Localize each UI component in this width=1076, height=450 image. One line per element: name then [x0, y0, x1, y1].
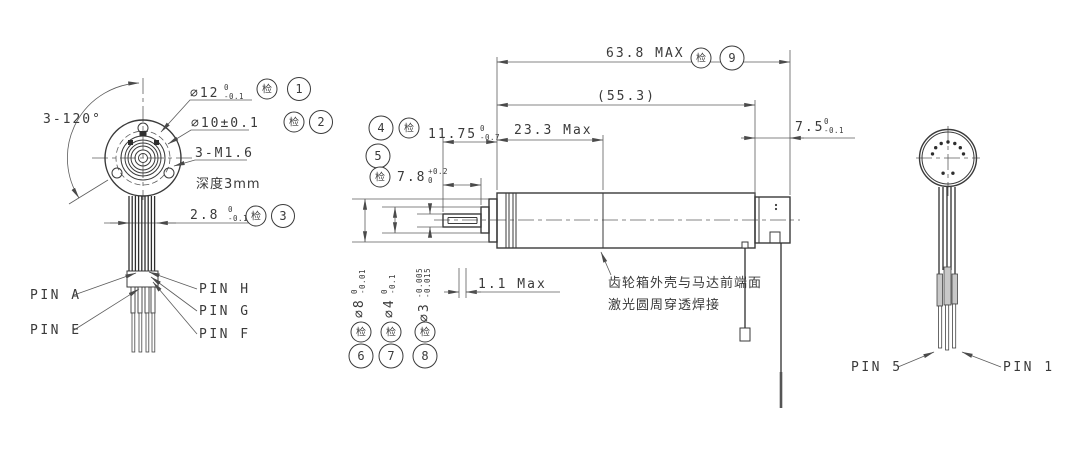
angle-label: 3-120°	[43, 112, 102, 127]
pin-f-label: PIN F	[199, 327, 251, 342]
motor-body	[497, 193, 755, 248]
ref-length-value: (55.3)	[597, 89, 656, 104]
balloon-5-label: 5	[374, 149, 381, 163]
dia4-tol-lower: -0.1	[388, 274, 397, 294]
balloon-1-label: 1	[295, 82, 302, 96]
tail-length-value: 7.5	[795, 120, 824, 135]
dia12-value: ∅12	[190, 86, 219, 101]
dia4-value: ∅4	[382, 298, 397, 318]
weld-note-line2: 激光圆周穿透焊接	[608, 297, 720, 313]
pin-f-leader	[153, 282, 197, 334]
balloon-8-label: 8	[421, 349, 428, 363]
shaft-length-value: 11.75	[428, 127, 477, 142]
pin-g-leader	[151, 277, 197, 311]
end-cap-notch	[770, 232, 780, 243]
balloon-3-label: 3	[279, 209, 286, 223]
pin-a-label: PIN A	[30, 288, 82, 303]
dia12-tol-lower: -0.1	[224, 92, 244, 101]
balloon-2-label: 2	[317, 115, 324, 129]
dia8-dim-text: ∅8 0 -0.01	[350, 269, 367, 318]
total-length-value: 63.8 MAX	[606, 46, 685, 61]
pin-e-label: PIN E	[30, 323, 82, 338]
balloon-4-label: 4	[377, 121, 384, 135]
flat-length-tol-lower: 0	[428, 176, 433, 185]
front-wire-bundle	[127, 196, 158, 352]
balloon-7-label: 7	[387, 349, 394, 363]
balloon-6-label: 6	[357, 349, 364, 363]
inspection-stamp-3-label: 检	[251, 210, 261, 223]
motor-drawing-canvas: 3-120° ∅12 0 -0.1 ∅10±0.1 3-M1.6 深度3mm 2…	[0, 0, 1076, 450]
shaft-length-tol-upper: 0	[480, 124, 485, 133]
inspection-stamp-9-label: 检	[696, 52, 706, 65]
bundle-width-value: 2.8	[190, 208, 219, 223]
gearbox-length-value: 23.3 Max	[514, 123, 593, 138]
dia3-dim-text: ∅3 -0.005 -0.015	[415, 268, 432, 322]
dia4-dim-text: ∅4 0 -0.1	[380, 274, 397, 318]
dia10-leader	[168, 130, 249, 144]
dia12-tol-upper: 0	[224, 83, 229, 92]
pin1-leader	[962, 352, 1001, 367]
inspection-stamp-8-label: 检	[420, 326, 430, 339]
pin1-label: PIN 1	[1003, 360, 1055, 375]
bundle-width-tol-upper: 0	[228, 205, 233, 214]
inspection-stamp-2-label: 检	[289, 116, 299, 129]
flat-length-value: 7.8	[397, 170, 426, 185]
pin-h-label: PIN H	[199, 282, 251, 297]
depth-label: 深度3mm	[196, 176, 261, 192]
output-shaft	[443, 214, 481, 227]
weld-note-leader	[601, 252, 611, 275]
side-view: 63.8 MAX 检 9 (55.3) 23.3 Max 4 检 11.75 0…	[349, 46, 855, 408]
inspection-stamp-7-label: 检	[386, 326, 396, 339]
dia3-tol-lower: -0.015	[423, 268, 432, 298]
tail-length-tol-upper: 0	[824, 117, 829, 126]
inspection-stamp-6-label: 检	[356, 326, 366, 339]
bundle-width-tol-lower: -0.1	[228, 214, 248, 223]
pin-g-label: PIN G	[199, 304, 251, 319]
weld-note-line1: 齿轮箱外壳与马达前端面	[608, 275, 762, 291]
mount-hole-right	[164, 168, 174, 178]
tail-length-tol-lower: -0.1	[824, 126, 844, 135]
shaft-length-tol-lower: -0.7	[480, 133, 500, 142]
engineering-drawing-page: 3-120° ∅12 0 -0.1 ∅10±0.1 3-M1.6 深度3mm 2…	[0, 0, 1076, 450]
front-plate	[489, 199, 497, 242]
pin-e-leader	[74, 289, 139, 330]
front-view: 3-120° ∅12 0 -0.1 ∅10±0.1 3-M1.6 深度3mm 2…	[30, 78, 333, 353]
wire-terminal	[740, 328, 750, 341]
dia10-value: ∅10±0.1	[191, 116, 260, 131]
inspection-stamp-4-label: 检	[404, 122, 414, 135]
dia3-value: ∅3	[417, 302, 432, 322]
inspection-stamp-5-label: 检	[375, 171, 385, 184]
keyway-mark	[140, 131, 147, 136]
rear-view: PIN 5 PIN 1	[851, 126, 1055, 375]
pin5-leader	[898, 352, 934, 367]
inspection-stamp-1-label: 检	[262, 83, 272, 96]
gap-length-value: 1.1 Max	[478, 277, 547, 292]
pin5-label: PIN 5	[851, 360, 903, 375]
dia8-value: ∅8	[352, 298, 367, 318]
balloon-9-label: 9	[728, 51, 735, 65]
thread-label: 3-M1.6	[195, 146, 254, 161]
flat-length-tol-upper: +0.2	[428, 167, 448, 176]
dia8-tol-lower: -0.01	[358, 269, 367, 294]
rear-wire-bundle	[937, 187, 958, 350]
front-radial-centerline	[69, 180, 108, 204]
